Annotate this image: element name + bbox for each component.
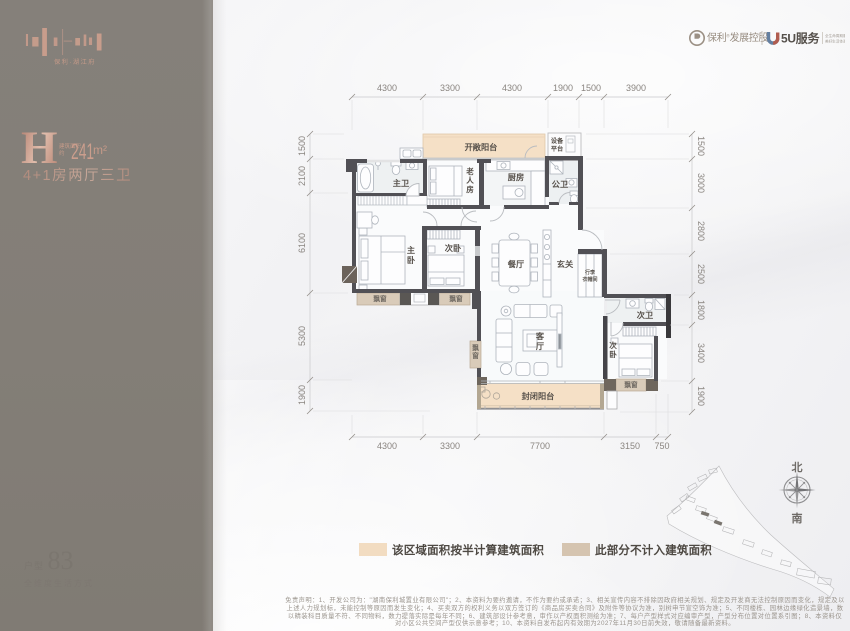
svg-text:次卫: 次卫 bbox=[637, 310, 653, 320]
svg-text:行李: 行李 bbox=[584, 269, 596, 276]
svg-text:窗: 窗 bbox=[472, 351, 479, 360]
svg-text:1800: 1800 bbox=[696, 300, 706, 320]
svg-text:封闭阳台: 封闭阳台 bbox=[522, 391, 555, 401]
svg-text:3900: 3900 bbox=[626, 83, 646, 93]
svg-text:3300: 3300 bbox=[440, 441, 460, 451]
svg-text:2500: 2500 bbox=[696, 264, 706, 284]
svg-text:老: 老 bbox=[466, 166, 474, 176]
svg-text:南: 南 bbox=[792, 511, 803, 525]
svg-text:3000: 3000 bbox=[696, 173, 706, 193]
svg-text:飘窗: 飘窗 bbox=[449, 294, 463, 303]
svg-text:人: 人 bbox=[465, 175, 474, 185]
svg-text:房: 房 bbox=[466, 184, 474, 194]
svg-text:卧: 卧 bbox=[609, 349, 617, 359]
svg-text:飘窗: 飘窗 bbox=[624, 380, 638, 389]
svg-text:飘: 飘 bbox=[472, 343, 479, 352]
svg-text:设备: 设备 bbox=[551, 137, 564, 145]
svg-text:3300: 3300 bbox=[440, 83, 460, 93]
svg-text:2800: 2800 bbox=[696, 221, 706, 241]
svg-text:衣帽间: 衣帽间 bbox=[582, 276, 597, 283]
svg-text:4300: 4300 bbox=[377, 441, 397, 451]
svg-text:1500: 1500 bbox=[297, 136, 307, 156]
svg-text:主: 主 bbox=[407, 245, 415, 255]
svg-text:1900: 1900 bbox=[696, 386, 706, 406]
svg-text:飘窗: 飘窗 bbox=[373, 294, 387, 303]
svg-text:玄关: 玄关 bbox=[557, 259, 574, 269]
svg-text:公卫: 公卫 bbox=[552, 180, 568, 189]
svg-text:1500: 1500 bbox=[581, 83, 601, 93]
svg-text:开敞阳台: 开敞阳台 bbox=[465, 142, 498, 152]
svg-text:平台: 平台 bbox=[551, 145, 563, 153]
svg-text:750: 750 bbox=[654, 441, 669, 451]
svg-text:7700: 7700 bbox=[530, 441, 550, 451]
svg-text:北: 北 bbox=[792, 460, 803, 474]
svg-text:1900: 1900 bbox=[553, 83, 573, 93]
svg-text:次: 次 bbox=[609, 340, 617, 350]
svg-text:3150: 3150 bbox=[620, 441, 640, 451]
svg-text:厨房: 厨房 bbox=[508, 172, 524, 182]
svg-text:客: 客 bbox=[535, 331, 545, 341]
svg-text:2100: 2100 bbox=[297, 166, 307, 186]
svg-text:主卫: 主卫 bbox=[393, 178, 409, 188]
svg-text:卧: 卧 bbox=[407, 255, 416, 265]
svg-text:4300: 4300 bbox=[502, 83, 522, 93]
svg-text:次卧: 次卧 bbox=[445, 243, 462, 253]
svg-text:1900: 1900 bbox=[297, 385, 307, 405]
svg-text:4300: 4300 bbox=[377, 83, 397, 93]
svg-text:1500: 1500 bbox=[696, 136, 706, 156]
svg-text:厅: 厅 bbox=[536, 342, 544, 351]
svg-text:5300: 5300 bbox=[297, 326, 307, 346]
svg-text:餐厅: 餐厅 bbox=[507, 259, 524, 269]
svg-text:3400: 3400 bbox=[696, 343, 706, 363]
svg-text:6100: 6100 bbox=[297, 233, 307, 253]
